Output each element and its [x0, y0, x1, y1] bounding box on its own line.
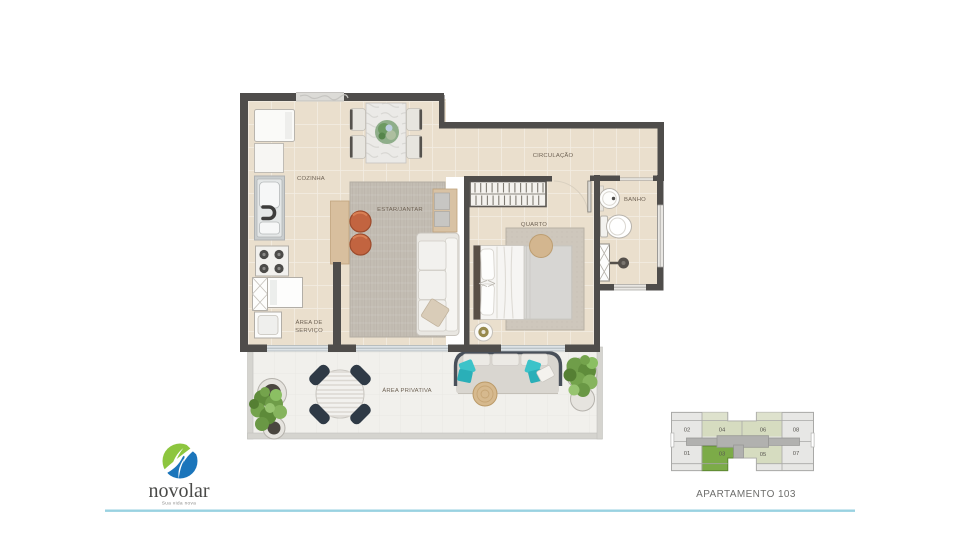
- svg-text:QUARTO: QUARTO: [521, 222, 547, 228]
- svg-text:05: 05: [760, 452, 767, 458]
- svg-text:ESTAR/JANTAR: ESTAR/JANTAR: [377, 207, 423, 213]
- svg-text:Sua vida nova: Sua vida nova: [162, 501, 196, 506]
- svg-text:08: 08: [793, 428, 800, 434]
- svg-text:BANHO: BANHO: [624, 197, 646, 203]
- svg-text:novolar: novolar: [148, 480, 209, 502]
- svg-text:03: 03: [719, 452, 726, 458]
- svg-text:02: 02: [684, 428, 691, 434]
- svg-text:SERVIÇO: SERVIÇO: [295, 328, 323, 334]
- svg-text:ÁREA PRIVATIVA: ÁREA PRIVATIVA: [382, 387, 432, 394]
- svg-text:CIRCULAÇÃO: CIRCULAÇÃO: [533, 152, 574, 159]
- svg-text:07: 07: [793, 451, 800, 457]
- svg-text:ÁREA DE: ÁREA DE: [296, 319, 323, 326]
- svg-text:06: 06: [760, 428, 767, 434]
- svg-text:COZINHA: COZINHA: [297, 176, 325, 182]
- svg-text:04: 04: [719, 428, 726, 434]
- svg-text:01: 01: [684, 451, 691, 457]
- svg-text:APARTAMENTO 103: APARTAMENTO 103: [696, 489, 796, 500]
